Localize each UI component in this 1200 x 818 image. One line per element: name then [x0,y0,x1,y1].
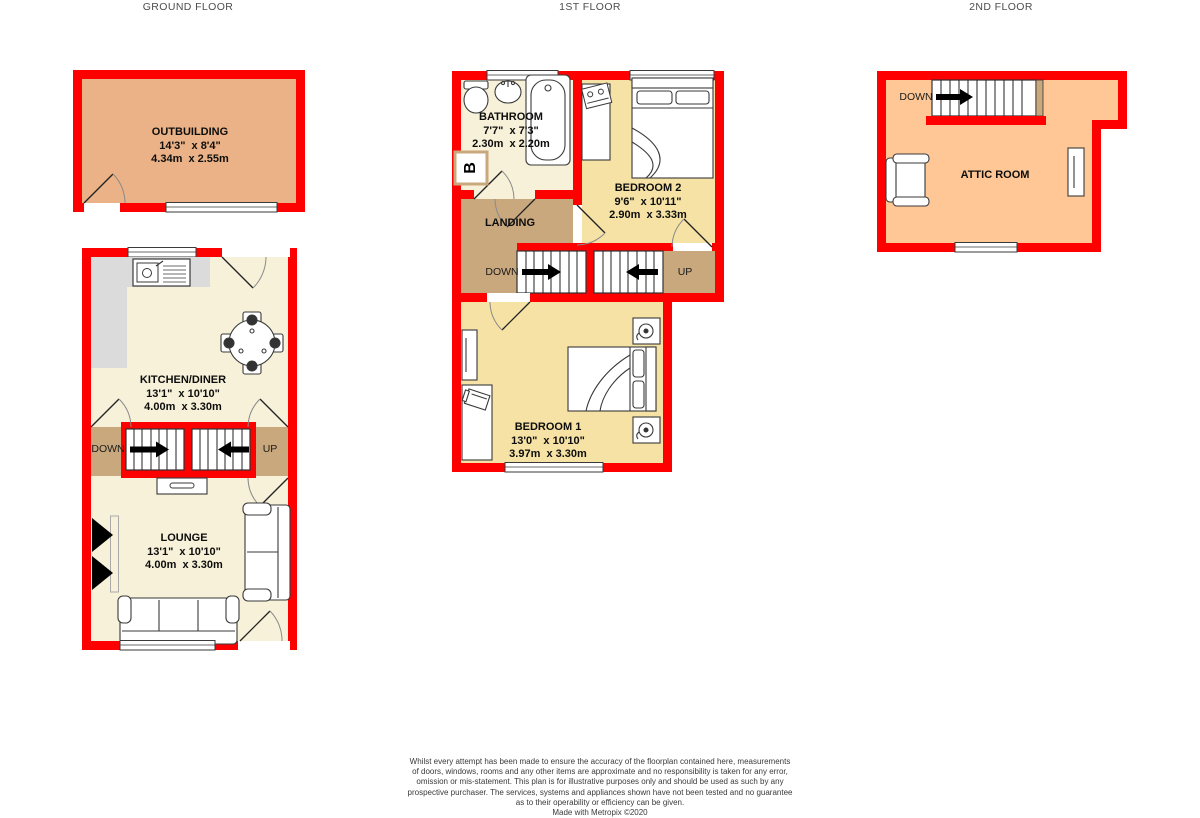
stair-label-up-ground: UP [235,443,305,455]
room-label-lounge: LOUNGE 13'1" x 10'10" 4.00m x 3.30m [99,532,269,573]
credit-line: Made with Metropix ©2020 [0,808,1200,818]
window [166,203,277,213]
floor-title-first: 1ST FLOOR [480,1,700,13]
window [955,243,1017,253]
door-opening [673,243,712,251]
double-bed-icon [568,347,656,411]
room-label-bedroom1: BEDROOM 1 13'0" x 10'10" 3.97m x 3.30m [463,421,633,462]
door-opening [487,293,530,302]
toilet-icon [464,81,488,113]
door-opening [474,190,535,199]
stair-label-down-ground: DOWN [73,443,143,455]
door-opening [222,248,290,257]
door-opening [84,203,120,212]
floor-title-ground: GROUND FLOOR [78,1,298,13]
window [120,641,215,651]
door-opening [238,641,290,650]
sofa-icon [118,596,239,644]
floor-title-second: 2ND FLOOR [891,1,1111,13]
console-table-icon [462,330,477,380]
room-label-attic: ATTIC ROOM [910,169,1080,183]
stair-label-down-second: DOWN [881,91,951,103]
room-label-bathroom: BATHROOM 7'7" x 7'3" 2.30m x 2.20m [426,111,596,152]
room-label-bedroom2: BEDROOM 2 9'6" x 10'11" 2.90m x 3.33m [563,182,733,223]
floorplan-page: GROUND FLOOR 1ST FLOOR 2ND FLOOR OUTBUIL… [0,0,1200,818]
room-label-outbuilding: OUTBUILDING 14'3" x 8'4" 4.34m x 2.55m [105,126,275,167]
bedside-lamp-icon [633,318,660,344]
stair-label-down-first: DOWN [467,266,537,278]
bedside-lamp-icon [633,417,660,443]
double-bed-icon [632,78,713,178]
sink-unit-icon [133,259,190,286]
boiler-label: B [455,152,487,184]
sink-icon [495,81,521,103]
disclaimer-text: Whilst every attempt has been made to en… [0,757,1200,818]
tv-table-icon [157,478,207,494]
window [128,248,196,258]
stair-label-up-first: UP [650,266,720,278]
room-label-kitchen-diner: KITCHEN/DINER 13'1" x 10'10" 4.00m x 3.3… [98,374,268,415]
